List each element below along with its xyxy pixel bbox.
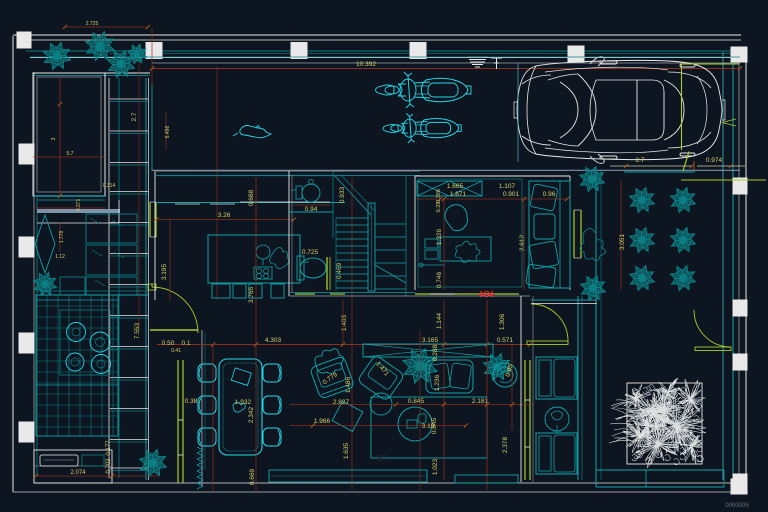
svg-text:0.288: 0.288 — [432, 344, 439, 361]
svg-text:1.144: 1.144 — [436, 312, 443, 329]
svg-text:1.403: 1.403 — [341, 314, 348, 331]
svg-text:1.486: 1.486 — [345, 376, 352, 393]
svg-text:1.966: 1.966 — [314, 418, 331, 425]
svg-text:0.41: 0.41 — [171, 348, 181, 354]
svg-text:1.778: 1.778 — [59, 231, 65, 244]
svg-text:0.688: 0.688 — [248, 189, 255, 206]
svg-text:4.303: 4.303 — [265, 337, 282, 344]
svg-text:1.326: 1.326 — [436, 228, 443, 245]
svg-text:1.12: 1.12 — [55, 254, 65, 260]
svg-text:1.665: 1.665 — [447, 183, 464, 190]
svg-text:0.177: 0.177 — [106, 440, 112, 456]
svg-text:0.371: 0.371 — [76, 199, 82, 212]
svg-text:2.827: 2.827 — [333, 399, 350, 406]
svg-text:2.342: 2.342 — [248, 406, 255, 423]
svg-text:3.051: 3.051 — [619, 233, 626, 250]
svg-text:0.28: 0.28 — [436, 202, 442, 213]
svg-text:0000005: 0000005 — [725, 503, 749, 509]
svg-text:1.107: 1.107 — [499, 183, 516, 190]
svg-text:3.165: 3.165 — [422, 337, 439, 344]
svg-text:5.7: 5.7 — [67, 151, 74, 157]
svg-text:1.932: 1.932 — [235, 399, 252, 406]
svg-text:0.933: 0.933 — [339, 186, 346, 203]
svg-text:0.469: 0.469 — [336, 262, 343, 279]
svg-text:0.725: 0.725 — [302, 249, 319, 256]
svg-text:2.7: 2.7 — [131, 112, 138, 121]
svg-text:2.378: 2.378 — [502, 436, 509, 453]
svg-text:10.392: 10.392 — [356, 61, 376, 68]
svg-text:1.635: 1.635 — [343, 442, 350, 459]
svg-text:2.181: 2.181 — [472, 398, 489, 405]
svg-text:0.396: 0.396 — [436, 189, 442, 203]
svg-text:2.612: 2.612 — [519, 234, 526, 251]
svg-text:3.765: 3.765 — [248, 286, 255, 303]
svg-text:0.94: 0.94 — [305, 206, 318, 213]
svg-text:0.702: 0.702 — [106, 458, 112, 474]
svg-text:2.725: 2.725 — [86, 21, 99, 27]
svg-text:0.845: 0.845 — [408, 398, 425, 405]
svg-text:0.38: 0.38 — [185, 398, 198, 405]
svg-text:7.553: 7.553 — [134, 322, 141, 339]
svg-text:2.7: 2.7 — [635, 157, 644, 164]
svg-text:3.195: 3.195 — [161, 263, 168, 280]
svg-text:1.871: 1.871 — [450, 191, 467, 198]
svg-text:1.306: 1.306 — [499, 313, 506, 330]
svg-text:0.1: 0.1 — [181, 340, 190, 347]
svg-text:0.571: 0.571 — [497, 337, 514, 344]
svg-text:0.901: 0.901 — [503, 191, 520, 198]
svg-text:2.074: 2.074 — [70, 470, 86, 476]
svg-text:0.669: 0.669 — [249, 468, 256, 485]
svg-text:1.236: 1.236 — [434, 374, 441, 391]
svg-text:3.19: 3.19 — [422, 423, 435, 430]
svg-text:3: 3 — [51, 137, 57, 140]
svg-text:0.96: 0.96 — [543, 191, 556, 198]
svg-text:3.26: 3.26 — [218, 212, 231, 219]
svg-text:0.314: 0.314 — [103, 183, 116, 189]
svg-text:0.746: 0.746 — [436, 271, 443, 288]
svg-text:1.023: 1.023 — [432, 458, 439, 475]
svg-text:0.50: 0.50 — [162, 340, 175, 347]
svg-text:6.496: 6.496 — [165, 126, 171, 139]
svg-text:0.974: 0.974 — [706, 157, 723, 164]
svg-text:90: 90 — [377, 453, 387, 463]
